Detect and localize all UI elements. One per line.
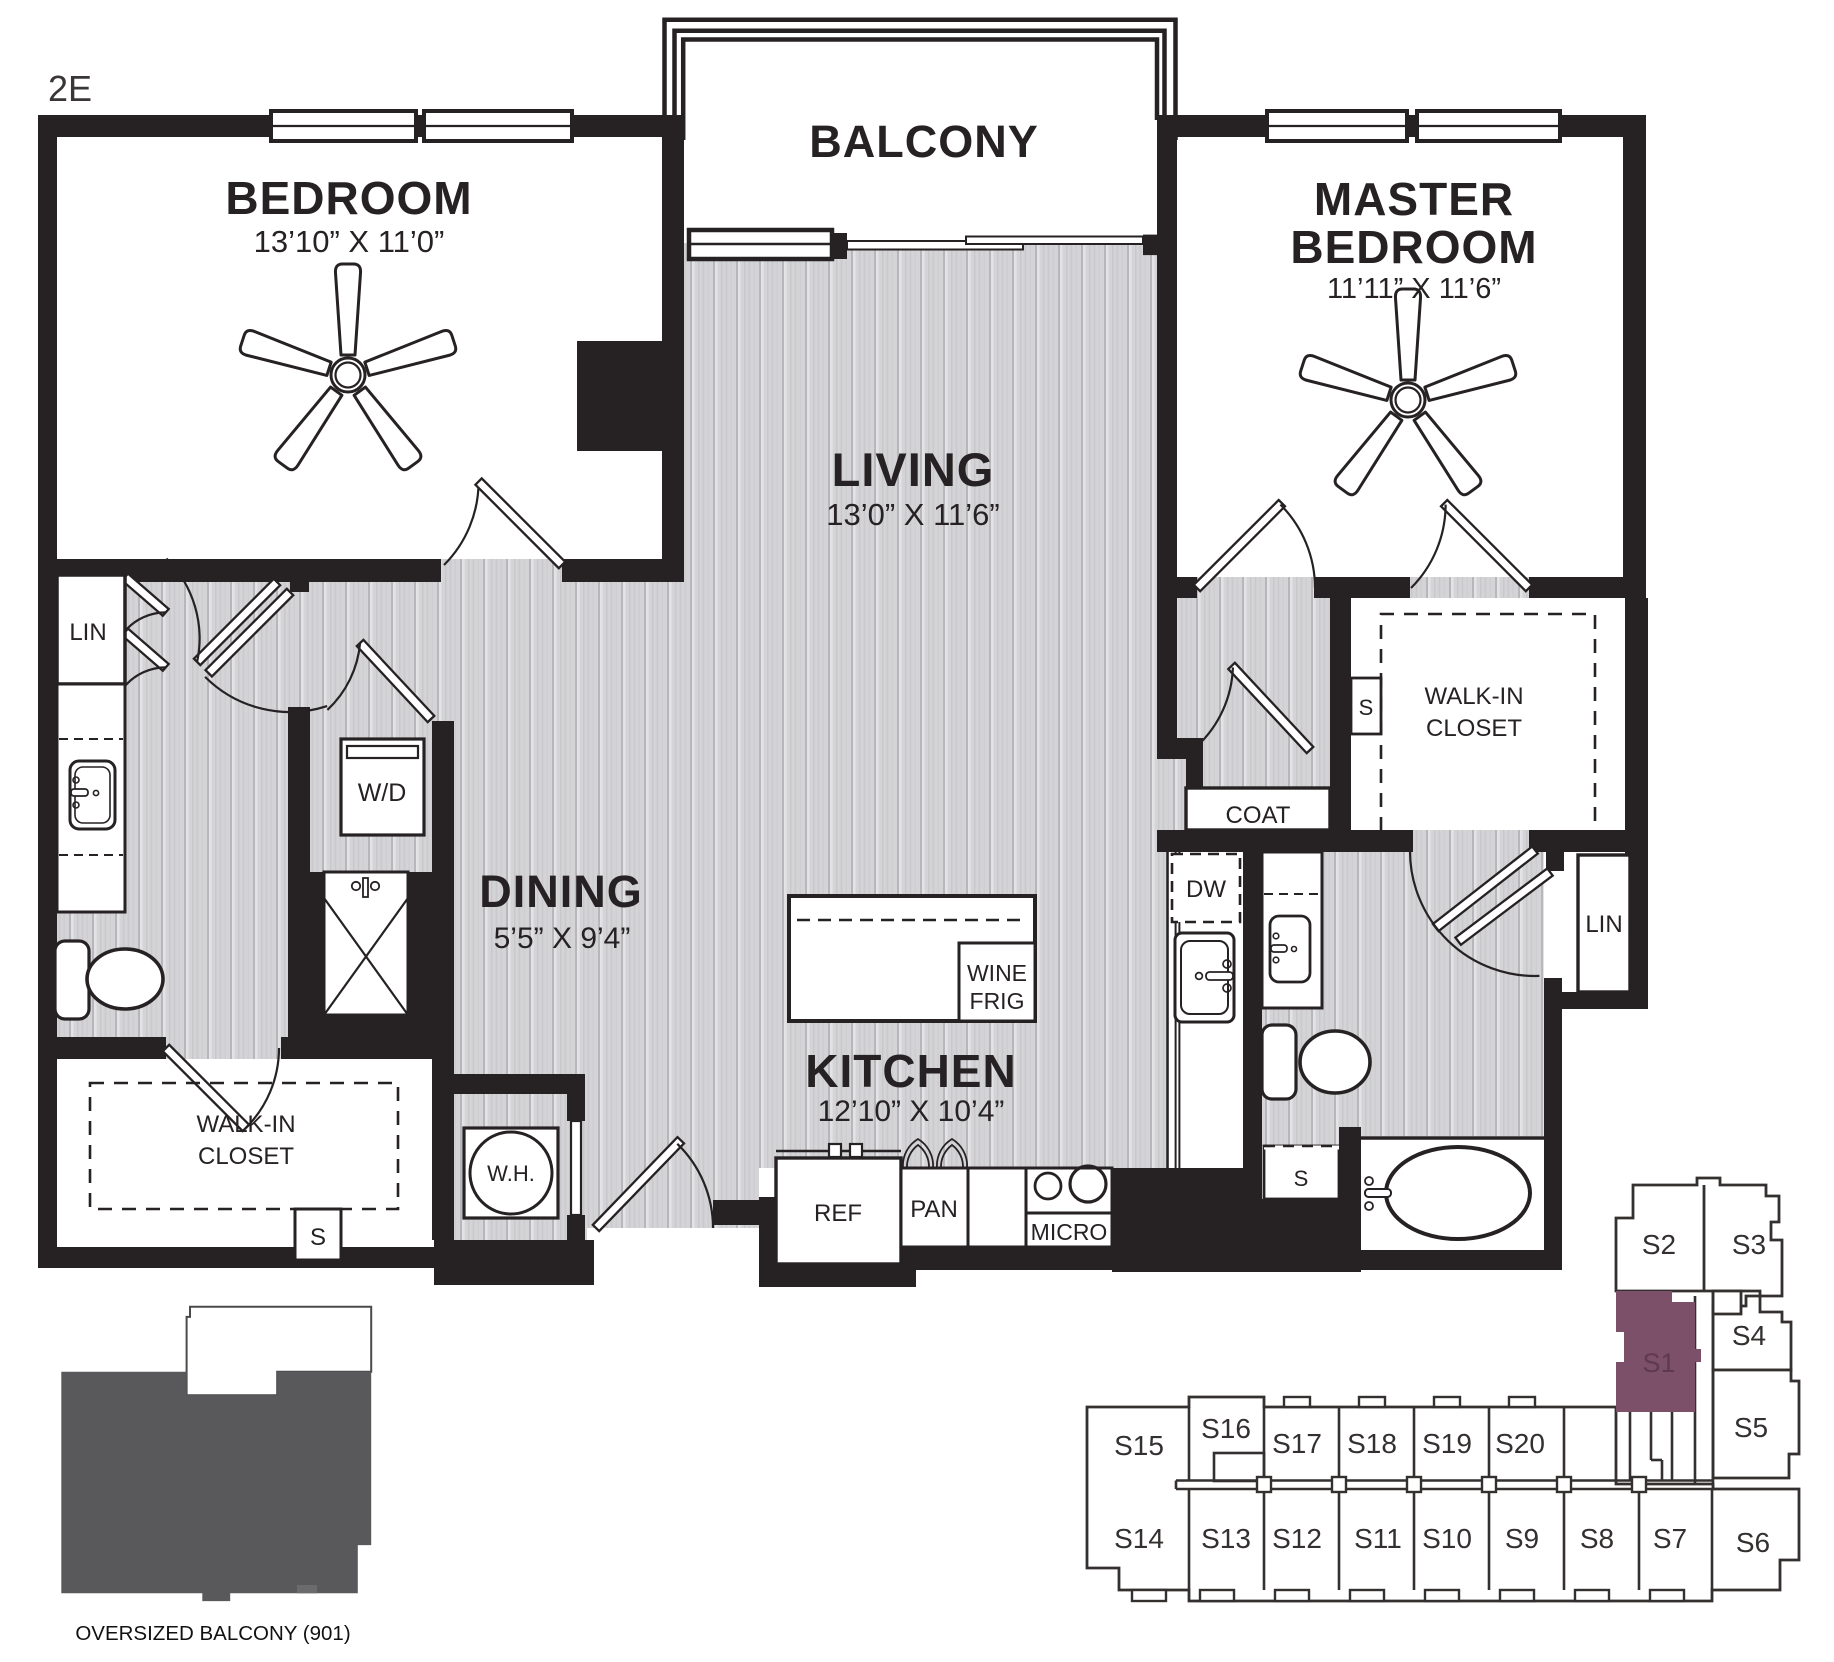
svg-text:S17: S17 [1272,1428,1322,1459]
svg-text:S16: S16 [1201,1413,1251,1444]
svg-text:S15: S15 [1114,1430,1164,1461]
svg-text:S12: S12 [1272,1523,1322,1554]
svg-text:LIN: LIN [1585,911,1622,938]
svg-text:S2: S2 [1642,1229,1676,1260]
svg-text:S1: S1 [1642,1348,1675,1378]
svg-text:S9: S9 [1505,1523,1539,1554]
svg-text:WINE: WINE [967,960,1027,986]
svg-text:11’11” X 11’6”: 11’11” X 11’6” [1327,273,1501,305]
svg-text:LIVING: LIVING [832,443,995,496]
svg-text:S5: S5 [1734,1412,1768,1443]
svg-text:S7: S7 [1653,1523,1687,1554]
svg-text:W.H.: W.H. [487,1161,535,1186]
svg-text:WALK-IN: WALK-IN [196,1111,295,1138]
svg-text:13’10” X 11’0”: 13’10” X 11’0” [254,224,445,259]
svg-text:BEDROOM: BEDROOM [225,172,472,224]
svg-text:COAT: COAT [1226,802,1291,829]
svg-text:WALK-IN: WALK-IN [1424,683,1523,710]
svg-text:13’0” X 11’6”: 13’0” X 11’6” [826,497,999,532]
svg-text:S13: S13 [1201,1523,1251,1554]
svg-text:FRIG: FRIG [970,988,1025,1014]
svg-text:MASTER: MASTER [1314,173,1514,225]
svg-text:5’5” X 9’4”: 5’5” X 9’4” [494,922,631,955]
svg-text:KITCHEN: KITCHEN [805,1045,1016,1097]
svg-text:OVERSIZED BALCONY (901): OVERSIZED BALCONY (901) [75,1622,350,1645]
svg-text:S20: S20 [1495,1428,1545,1459]
svg-text:S6: S6 [1736,1527,1770,1558]
svg-text:2E: 2E [48,68,92,109]
svg-text:REF: REF [814,1200,862,1227]
svg-text:12’10” X 10’4”: 12’10” X 10’4” [818,1095,1005,1128]
svg-text:W/D: W/D [358,779,407,807]
svg-text:PAN: PAN [910,1196,958,1223]
svg-text:S11: S11 [1354,1523,1402,1554]
svg-text:S: S [310,1224,326,1251]
svg-text:CLOSET: CLOSET [198,1143,294,1170]
svg-text:CLOSET: CLOSET [1426,715,1522,742]
svg-text:S: S [1359,695,1374,720]
svg-text:S10: S10 [1422,1523,1472,1554]
svg-text:S18: S18 [1347,1428,1397,1459]
svg-text:S3: S3 [1732,1229,1766,1260]
svg-text:MICRO: MICRO [1031,1219,1108,1245]
svg-text:S8: S8 [1580,1523,1614,1554]
svg-text:S: S [1294,1166,1309,1191]
svg-text:BALCONY: BALCONY [809,116,1039,167]
svg-text:LIN: LIN [69,619,106,646]
svg-text:BEDROOM: BEDROOM [1290,221,1537,273]
svg-text:S4: S4 [1732,1320,1766,1351]
svg-text:DINING: DINING [479,866,643,917]
svg-text:DW: DW [1186,876,1226,903]
svg-text:S14: S14 [1114,1523,1164,1554]
svg-text:S19: S19 [1422,1428,1472,1459]
